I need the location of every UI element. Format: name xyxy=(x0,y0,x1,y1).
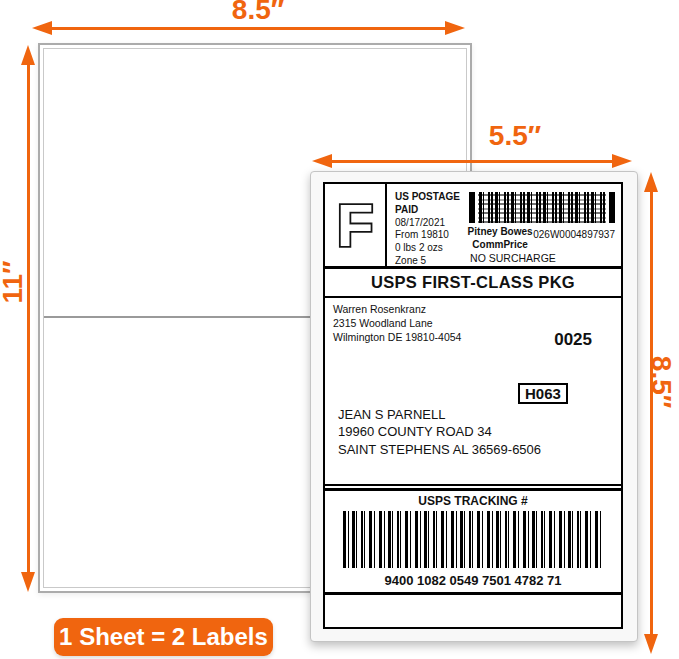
recipient-street: 19960 COUNTY ROAD 34 xyxy=(338,423,541,440)
postage-header-right: US POSTAGE PAID 08/17/2021 From 19810 0 … xyxy=(387,184,621,266)
postage-stamp-cell: F xyxy=(325,184,387,266)
arrow-head-right-icon xyxy=(612,154,632,168)
arrow-head-right-icon xyxy=(445,21,465,35)
arrow-head-bottom-icon xyxy=(644,634,658,654)
svg-text:F: F xyxy=(337,192,374,258)
arrow-head-bottom-icon xyxy=(21,572,35,592)
product-image: 8.5″ 11″ 5.5″ 8.5″ F xyxy=(0,0,679,659)
postage-origin: From 19810 xyxy=(395,229,467,242)
meter-number: 026W0004897937 xyxy=(533,226,615,240)
recipient-city: SAINT STEPHENS AL 36569-6506 xyxy=(338,441,541,458)
postage-date: 08/17/2021 xyxy=(395,217,467,230)
sender-name: Warren Rosenkranz xyxy=(333,303,461,317)
surcharge-note: NO SURCHARGE xyxy=(453,252,573,264)
label-height-label: 8.5″ xyxy=(645,336,677,428)
tracking-separator xyxy=(325,484,621,491)
address-section: Warren Rosenkranz 2315 Woodland Lane Wil… xyxy=(325,298,621,484)
batch-number: 0025 xyxy=(554,330,592,350)
recipient-address: JEAN S PARNELL 19960 COUNTY ROAD 34 SAIN… xyxy=(338,406,541,458)
postage-meter-block: Pitney Bowes CommPrice 026W0004897937 NO… xyxy=(467,191,615,264)
sheet-height-label: 11″ xyxy=(0,243,29,321)
tracking-title: USPS TRACKING # xyxy=(325,491,621,511)
sheet-count-badge: 1 Sheet = 2 Labels xyxy=(54,618,273,656)
carrier-name-line2: CommPrice xyxy=(467,239,533,252)
tracking-barcode-icon xyxy=(343,511,603,568)
label-width-label: 5.5″ xyxy=(470,120,560,152)
first-class-stamp-letter-icon: F xyxy=(333,192,377,258)
carrier-name-line1: Pitney Bowes xyxy=(467,226,533,239)
sheet-width-label: 8.5″ xyxy=(208,0,308,26)
tracking-section: USPS TRACKING # 9400 1082 0549 7501 4782… xyxy=(325,491,621,627)
tracking-number: 9400 1082 0549 7501 4782 71 xyxy=(325,568,621,592)
label-width-arrow-icon xyxy=(312,154,632,168)
sender-street: 2315 Woodland Lane xyxy=(333,317,461,331)
sender-address: Warren Rosenkranz 2315 Woodland Lane Wil… xyxy=(333,303,461,345)
recipient-name: JEAN S PARNELL xyxy=(338,406,541,423)
postage-header: F US POSTAGE PAID 08/17/2021 From 19810 … xyxy=(325,184,621,269)
service-banner: USPS FIRST-CLASS PKG xyxy=(325,269,621,298)
shipping-label-content: F US POSTAGE PAID 08/17/2021 From 19810 … xyxy=(323,182,623,629)
arrow-shaft xyxy=(46,27,451,30)
postage-paid-line1: US POSTAGE xyxy=(395,191,467,204)
postage-paid-line2: PAID xyxy=(395,204,467,217)
carrier-name: Pitney Bowes CommPrice xyxy=(467,226,533,251)
arrow-shaft xyxy=(326,160,618,163)
sort-code: H063 xyxy=(518,383,568,404)
sender-city: Wilmington DE 19810-4054 xyxy=(333,331,461,345)
carrier-row: Pitney Bowes CommPrice 026W0004897937 xyxy=(467,226,615,251)
shipping-label: F US POSTAGE PAID 08/17/2021 From 19810 … xyxy=(310,171,638,642)
tracking-bottom-rule xyxy=(325,592,621,595)
postage-meter-barcode-icon xyxy=(469,192,615,223)
